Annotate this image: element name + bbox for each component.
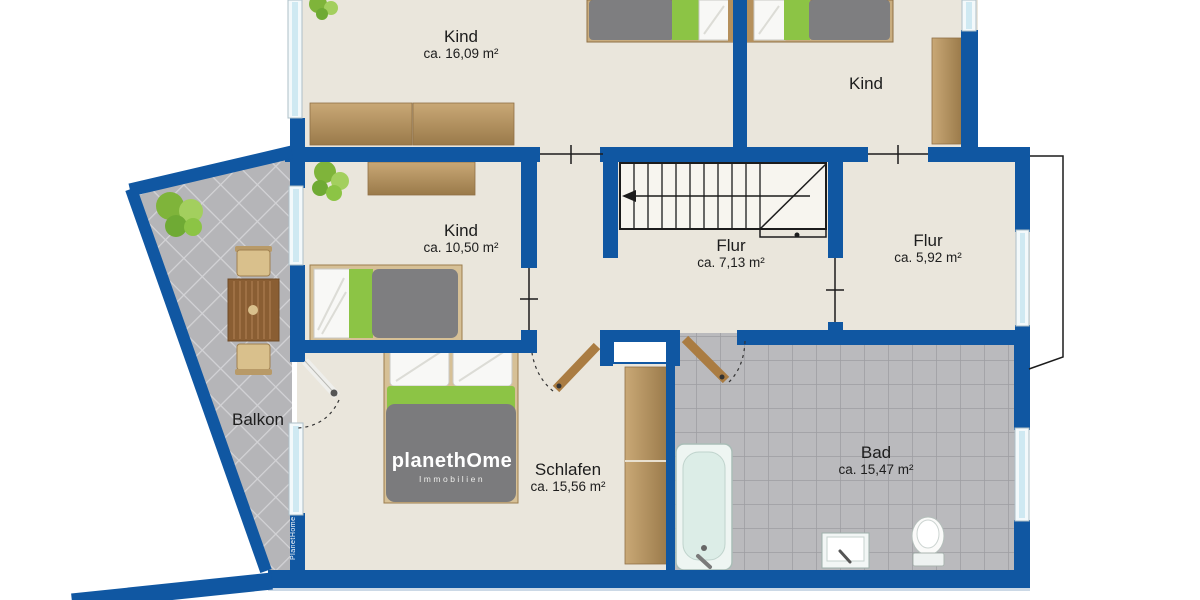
window-icon xyxy=(962,0,976,31)
room-label-kind-right: Kind xyxy=(849,74,883,93)
staircase xyxy=(620,163,826,238)
room-label-balkon: Balkon xyxy=(232,410,284,429)
wardrobe-icon-top-right xyxy=(932,38,962,144)
room-label-kind-middle: Kind ca. 10,50 m² xyxy=(423,221,498,255)
desk-icon xyxy=(368,162,475,195)
planethome-wall-text: PlanetHome xyxy=(290,506,305,570)
wardrobe-icon-bedroom xyxy=(625,367,668,564)
window-icon xyxy=(1015,428,1029,521)
window-icon xyxy=(289,186,303,265)
bathtub-icon xyxy=(676,444,732,570)
room-label-schlafen: Schlafen ca. 15,56 m² xyxy=(530,460,605,494)
floorplan-svg xyxy=(0,0,1200,600)
bed-icon-top-left xyxy=(587,0,737,42)
doorway-niche xyxy=(613,341,667,363)
sink-icon xyxy=(822,533,869,568)
planethome-logo: planethOme Immobilien xyxy=(392,450,513,484)
room-label-kind-large: Kind ca. 16,09 m² xyxy=(423,27,498,61)
window-icon xyxy=(1016,230,1029,326)
floor-plan: Kind ca. 16,09 m² Kind Kind ca. 10,50 m²… xyxy=(0,0,1200,600)
bed-icon-top-right xyxy=(745,0,893,42)
sideboard-icon xyxy=(310,103,514,145)
bed-icon-middle xyxy=(310,265,462,342)
window-icon xyxy=(289,423,303,515)
toilet-icon xyxy=(912,517,944,566)
window-icon xyxy=(288,0,302,118)
eave-outline xyxy=(1029,156,1063,369)
room-label-flur-right: Flur ca. 5,92 m² xyxy=(894,231,962,265)
room-label-flur-center: Flur ca. 7,13 m² xyxy=(697,236,765,270)
room-label-bad: Bad ca. 15,47 m² xyxy=(838,443,913,477)
